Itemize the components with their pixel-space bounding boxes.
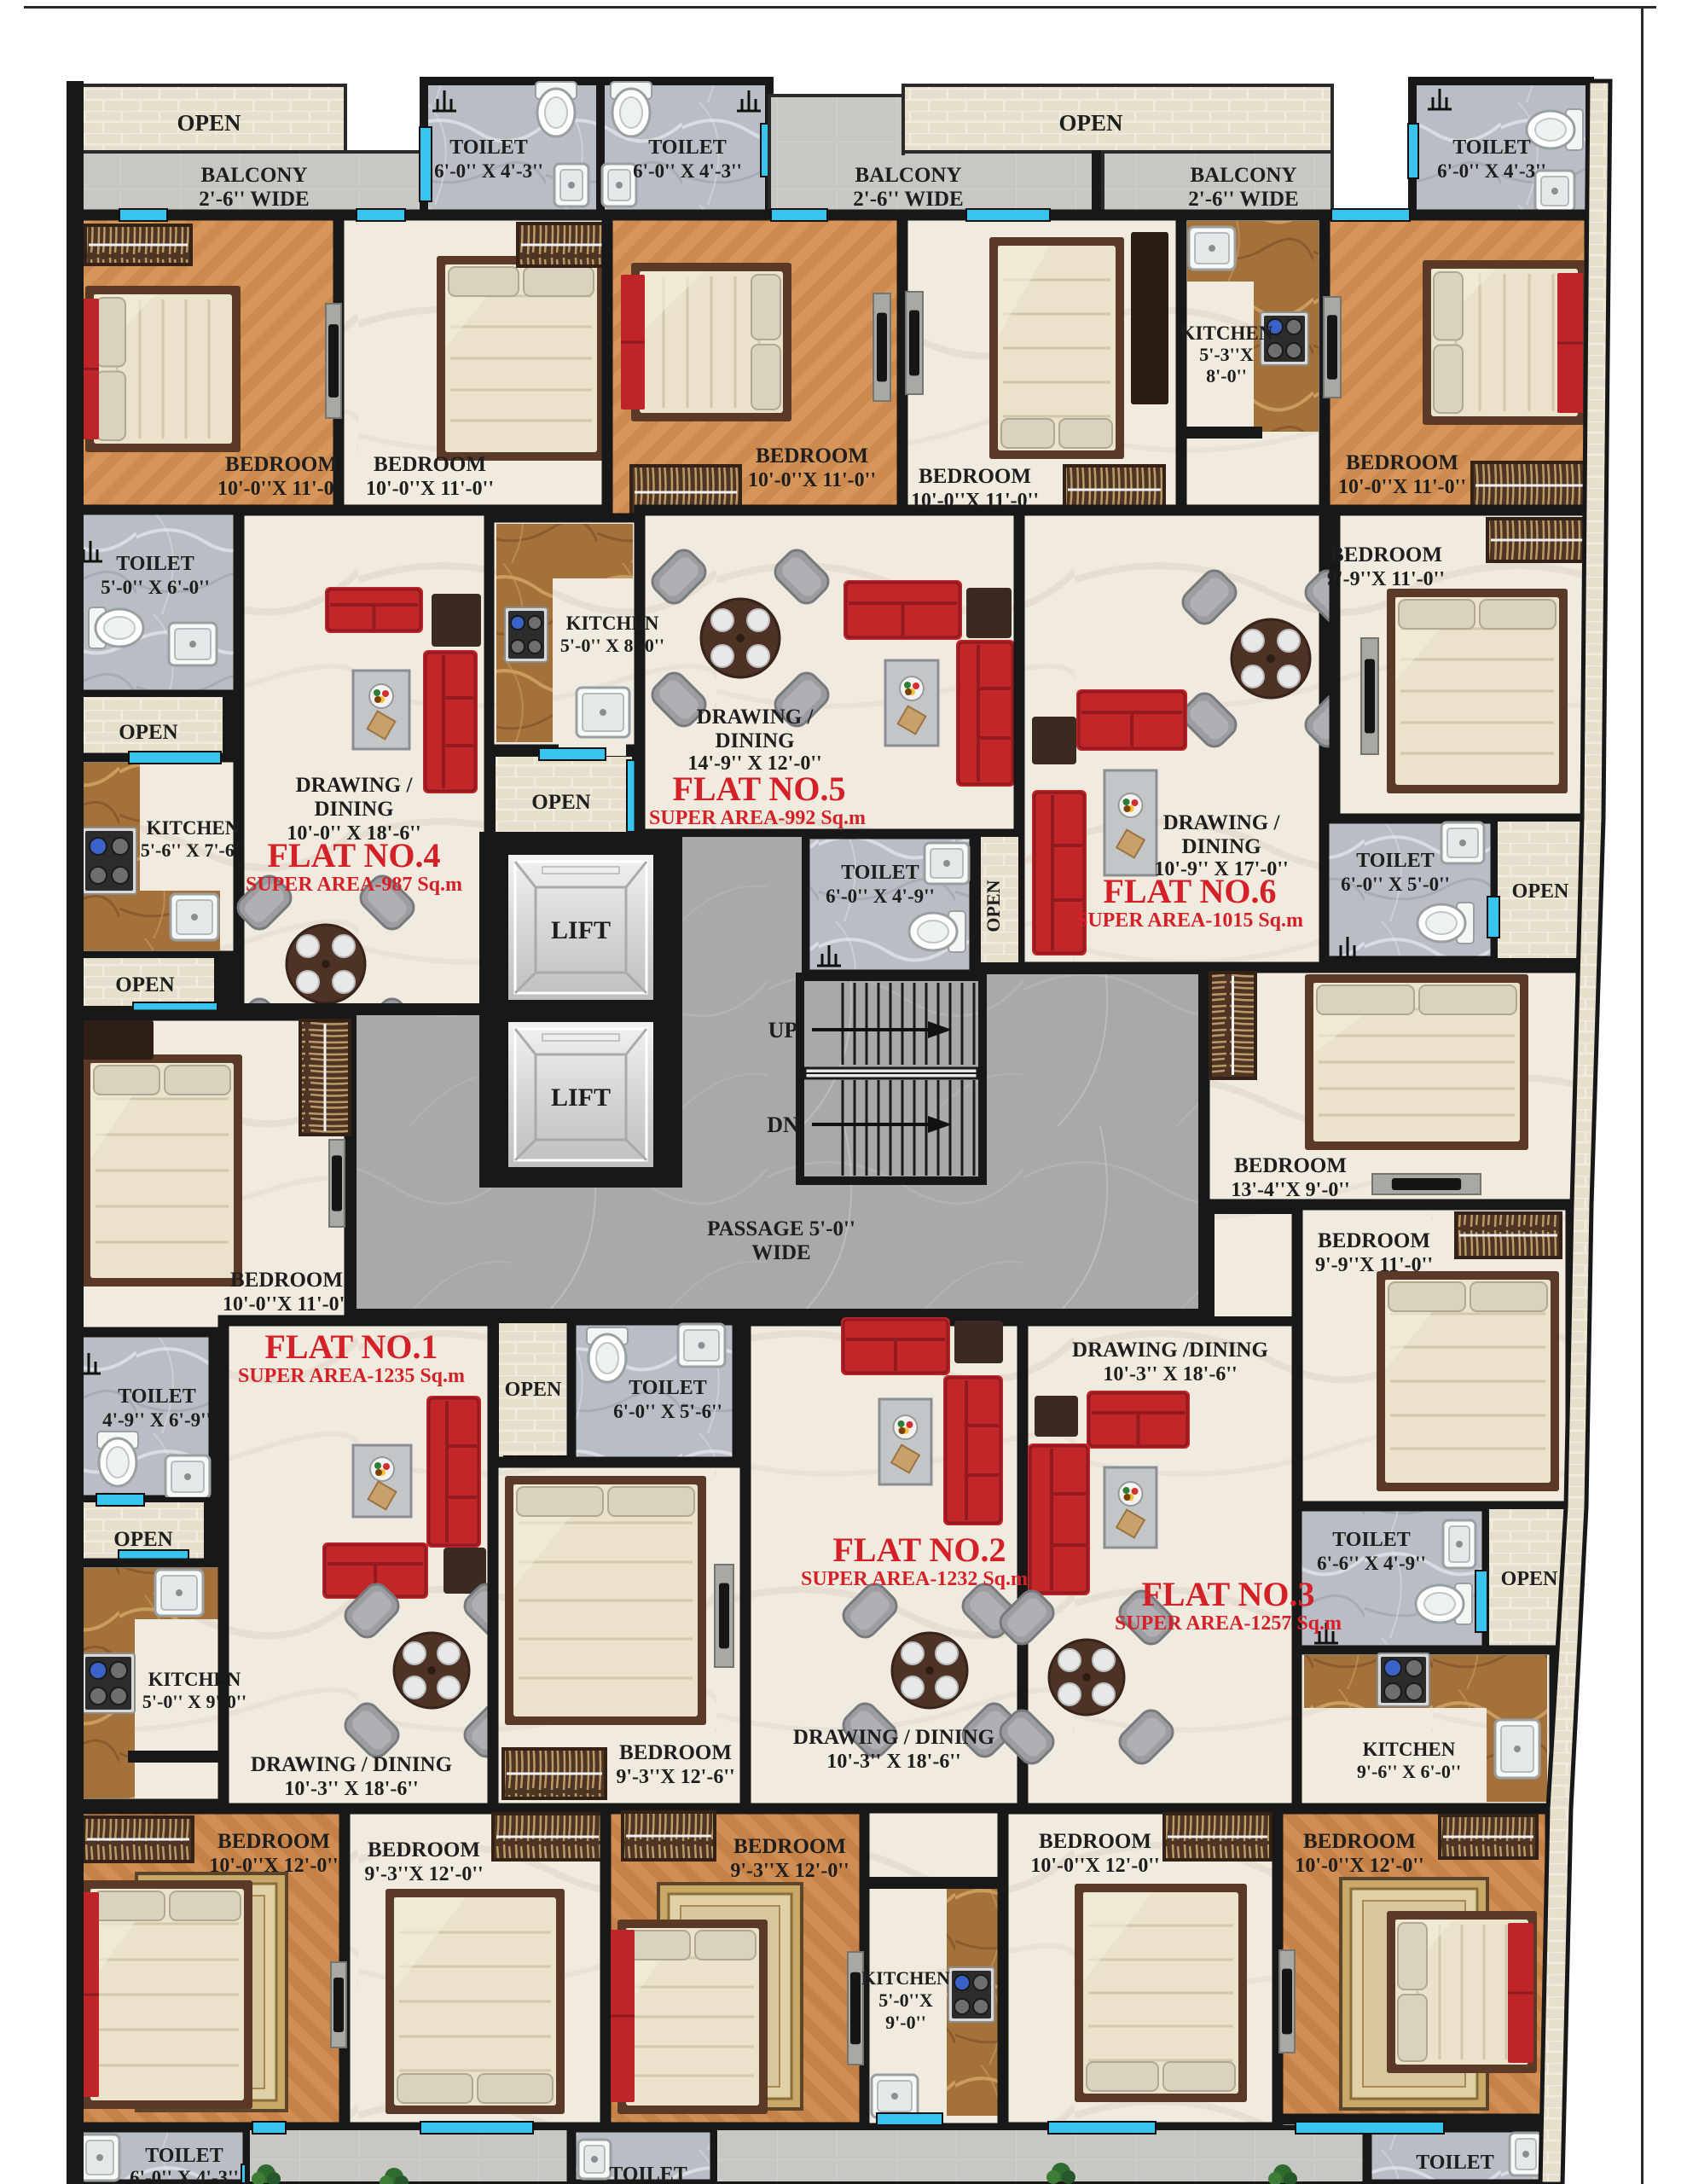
svg-text:KITCHEN: KITCHEN [147, 817, 240, 839]
svg-text:10'-0''X 12'-0'': 10'-0''X 12'-0'' [209, 1855, 338, 1877]
svg-text:KITCHEN: KITCHEN [1363, 1739, 1456, 1760]
svg-text:KITCHEN: KITCHEN [1180, 322, 1273, 344]
svg-text:DINING: DINING [314, 798, 393, 821]
svg-text:5'-3''X: 5'-3''X [1199, 344, 1254, 365]
svg-text:OPEN: OPEN [177, 110, 241, 136]
svg-text:DINING: DINING [715, 729, 794, 752]
svg-text:BALCONY: BALCONY [200, 164, 307, 187]
svg-text:6'-0'' X 5'-0'': 6'-0'' X 5'-0'' [1341, 874, 1450, 895]
svg-text:BEDROOM: BEDROOM [1330, 543, 1442, 566]
svg-text:10'-0''X 11'-0'': 10'-0''X 11'-0'' [217, 478, 345, 500]
svg-text:OPEN: OPEN [1512, 880, 1569, 903]
svg-text:OPEN: OPEN [505, 1379, 562, 1401]
svg-text:6'-0'' X 4'-3'': 6'-0'' X 4'-3'' [1437, 160, 1546, 182]
svg-text:OPEN: OPEN [113, 1528, 172, 1551]
svg-text:BEDROOM: BEDROOM [619, 1741, 732, 1764]
svg-text:TOILET: TOILET [1452, 136, 1531, 159]
svg-text:FLAT NO.2: FLAT NO.2 [833, 1531, 1006, 1569]
svg-text:BEDROOM: BEDROOM [368, 1838, 480, 1862]
svg-text:TOILET: TOILET [1356, 850, 1435, 872]
svg-text:OPEN: OPEN [531, 791, 590, 814]
svg-text:PASSAGE 5'-0'': PASSAGE 5'-0'' [707, 1217, 855, 1240]
svg-text:10'-3'' X 18'-6'': 10'-3'' X 18'-6'' [826, 1751, 960, 1773]
svg-text:OPEN: OPEN [1501, 1568, 1558, 1590]
svg-text:BEDROOM: BEDROOM [733, 1835, 846, 1858]
svg-text:DRAWING /: DRAWING / [697, 706, 815, 729]
svg-text:6'-0'' X 4'-3'': 6'-0'' X 4'-3'' [130, 2167, 239, 2184]
svg-text:10'-0''X 11'-0'': 10'-0''X 11'-0'' [223, 1293, 351, 1316]
svg-text:DRAWING /: DRAWING / [296, 774, 414, 797]
svg-text:5'-0'' X 8'-0'': 5'-0'' X 8'-0'' [560, 635, 664, 656]
svg-text:10'-0''X 11'-0'': 10'-0''X 11'-0'' [1338, 476, 1466, 498]
svg-text:BALCONY: BALCONY [1190, 164, 1296, 187]
svg-text:10'-3'' X 18'-6'': 10'-3'' X 18'-6'' [1103, 1363, 1237, 1385]
svg-text:BEDROOM: BEDROOM [225, 453, 338, 476]
svg-text:9'-9''X 11'-0'': 9'-9''X 11'-0'' [1327, 568, 1445, 590]
svg-text:BEDROOM: BEDROOM [1234, 1154, 1347, 1177]
svg-text:10'-0''X 11'-0'': 10'-0''X 11'-0'' [748, 469, 876, 491]
svg-text:OPEN: OPEN [983, 880, 1004, 932]
svg-text:10'-0''X 11'-0'': 10'-0''X 11'-0'' [911, 490, 1039, 512]
svg-text:9'-3''X 12'-0'': 9'-3''X 12'-0'' [730, 1860, 849, 1882]
svg-text:FLAT NO.3: FLAT NO.3 [1142, 1575, 1315, 1613]
svg-text:SUPER AREA-1232 Sq.m: SUPER AREA-1232 Sq.m [801, 1568, 1028, 1590]
svg-text:TOILET: TOILET [116, 553, 194, 575]
svg-text:DN: DN [767, 1112, 799, 1137]
svg-text:TOILET: TOILET [629, 1377, 707, 1399]
svg-text:9'-6'' X 6'-0'': 9'-6'' X 6'-0'' [1357, 1761, 1461, 1782]
svg-text:BEDROOM: BEDROOM [217, 1830, 330, 1853]
svg-text:KITCHEN: KITCHEN [566, 613, 659, 634]
svg-text:SUPER AREA-992 Sq.m: SUPER AREA-992 Sq.m [649, 807, 866, 829]
svg-text:2'-6'' WIDE: 2'-6'' WIDE [1188, 188, 1298, 211]
svg-text:BEDROOM: BEDROOM [1303, 1830, 1416, 1853]
svg-text:BEDROOM: BEDROOM [756, 444, 868, 468]
svg-text:FLAT NO.6: FLAT NO.6 [1104, 872, 1277, 910]
svg-text:13'-4''X 9'-0'': 13'-4''X 9'-0'' [1231, 1179, 1349, 1201]
svg-text:9'-3''X 12'-0'': 9'-3''X 12'-0'' [364, 1863, 483, 1885]
svg-text:9'-3''X 12'-6'': 9'-3''X 12'-6'' [616, 1766, 734, 1788]
svg-text:TOILET: TOILET [648, 136, 727, 159]
svg-text:6'-0'' X 5'-6'': 6'-0'' X 5'-6'' [613, 1401, 722, 1422]
svg-text:WIDE: WIDE [751, 1241, 810, 1264]
svg-text:6'-0'' X 4'-3'': 6'-0'' X 4'-3'' [434, 160, 543, 182]
svg-text:BEDROOM: BEDROOM [230, 1269, 343, 1292]
svg-text:SUPER AREA-1235 Sq.m: SUPER AREA-1235 Sq.m [238, 1365, 465, 1387]
svg-text:9'-9''X 11'-0'': 9'-9''X 11'-0'' [1315, 1254, 1433, 1276]
svg-text:9'-0'': 9'-0'' [885, 2012, 926, 2033]
svg-text:10'-0''X 11'-0'': 10'-0''X 11'-0'' [366, 478, 494, 500]
svg-text:FLAT NO.5: FLAT NO.5 [673, 770, 846, 808]
svg-text:SUPER AREA-1015 Sq.m: SUPER AREA-1015 Sq.m [1076, 909, 1303, 932]
svg-text:OPEN: OPEN [119, 721, 177, 744]
svg-text:8'-0'': 8'-0'' [1206, 365, 1247, 386]
svg-text:TOILET: TOILET [1332, 1529, 1411, 1551]
svg-text:2'-6'' WIDE: 2'-6'' WIDE [199, 188, 309, 211]
svg-text:BALCONY: BALCONY [855, 164, 961, 187]
svg-text:BEDROOM: BEDROOM [919, 465, 1031, 488]
svg-text:DINING: DINING [1181, 835, 1261, 858]
svg-text:DRAWING / DINING: DRAWING / DINING [251, 1753, 452, 1776]
svg-text:6'-0'' X 4'-9'': 6'-0'' X 4'-9'' [826, 886, 935, 907]
svg-text:OPEN: OPEN [1058, 110, 1123, 136]
svg-text:10'-0''X 12'-0'': 10'-0''X 12'-0'' [1295, 1855, 1423, 1877]
svg-text:TOILET: TOILET [609, 2164, 687, 2184]
svg-text:2'-6'' WIDE: 2'-6'' WIDE [853, 188, 963, 211]
svg-text:6'-6'' X 4'-9'': 6'-6'' X 4'-9'' [1317, 1553, 1426, 1574]
svg-text:SUPER AREA-1257 Sq.m: SUPER AREA-1257 Sq.m [1115, 1612, 1342, 1635]
svg-text:BEDROOM: BEDROOM [1318, 1229, 1430, 1252]
svg-text:5'-0''X: 5'-0''X [878, 1989, 933, 2011]
svg-text:DRAWING /DINING: DRAWING /DINING [1072, 1339, 1268, 1362]
svg-text:TOILET: TOILET [841, 862, 919, 884]
svg-text:TOILET: TOILET [1416, 2152, 1494, 2174]
svg-text:DRAWING /: DRAWING / [1163, 811, 1281, 834]
svg-text:TOILET: TOILET [449, 136, 528, 159]
svg-text:5'-0'' X 6'-0'': 5'-0'' X 6'-0'' [101, 577, 210, 598]
svg-text:UP: UP [768, 1018, 798, 1043]
svg-text:5'-0'' X 9'-0'': 5'-0'' X 9'-0'' [142, 1691, 246, 1712]
svg-text:10'-3'' X 18'-6'': 10'-3'' X 18'-6'' [284, 1778, 418, 1800]
svg-text:5'-6'' X 7'-6'': 5'-6'' X 7'-6'' [141, 839, 245, 861]
svg-text:FLAT NO.4: FLAT NO.4 [268, 836, 441, 874]
svg-text:OPEN: OPEN [115, 973, 174, 996]
svg-text:FLAT NO.1: FLAT NO.1 [265, 1327, 438, 1366]
svg-text:KITCHEN: KITCHEN [148, 1669, 241, 1690]
svg-text:BEDROOM: BEDROOM [1346, 451, 1458, 474]
svg-text:LIFT: LIFT [551, 1083, 611, 1112]
svg-text:BEDROOM: BEDROOM [1039, 1830, 1151, 1853]
svg-text:KITCHEN: KITCHEN [861, 1967, 950, 1989]
svg-text:TOILET: TOILET [145, 2145, 223, 2167]
svg-text:SUPER AREA-987 Sq.m: SUPER AREA-987 Sq.m [246, 874, 462, 896]
svg-text:TOILET: TOILET [118, 1385, 196, 1408]
svg-text:LIFT: LIFT [551, 916, 611, 944]
svg-text:4'-9'' X 6'-9'': 4'-9'' X 6'-9'' [102, 1409, 212, 1431]
svg-text:BEDROOM: BEDROOM [374, 453, 486, 476]
svg-text:10'-0''X 12'-0'': 10'-0''X 12'-0'' [1030, 1855, 1159, 1877]
svg-text:DRAWING / DINING: DRAWING / DINING [793, 1726, 994, 1749]
svg-text:6'-0'' X 4'-3'': 6'-0'' X 4'-3'' [633, 160, 742, 182]
